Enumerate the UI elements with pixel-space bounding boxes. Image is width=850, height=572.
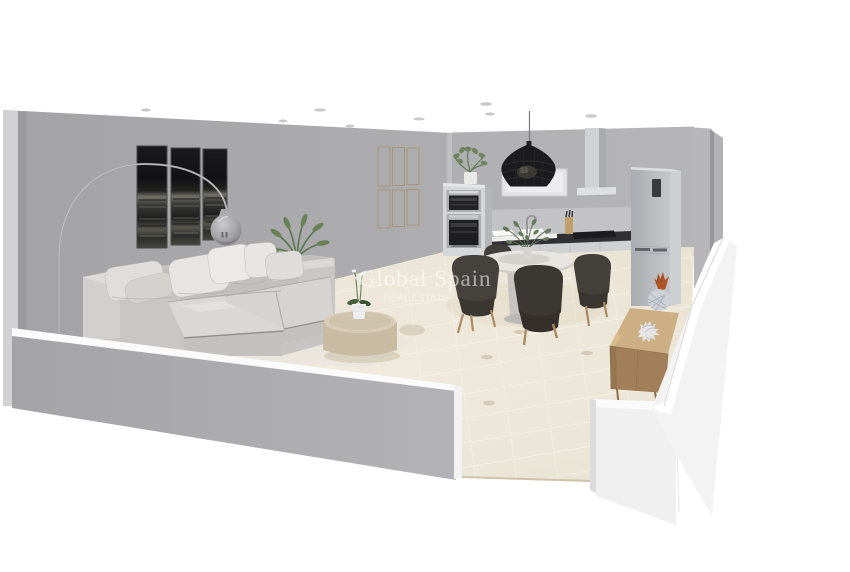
svg-text:Global Spain: Global Spain bbox=[359, 266, 492, 292]
svg-text:REAL ESTATE: REAL ESTATE bbox=[384, 293, 449, 304]
